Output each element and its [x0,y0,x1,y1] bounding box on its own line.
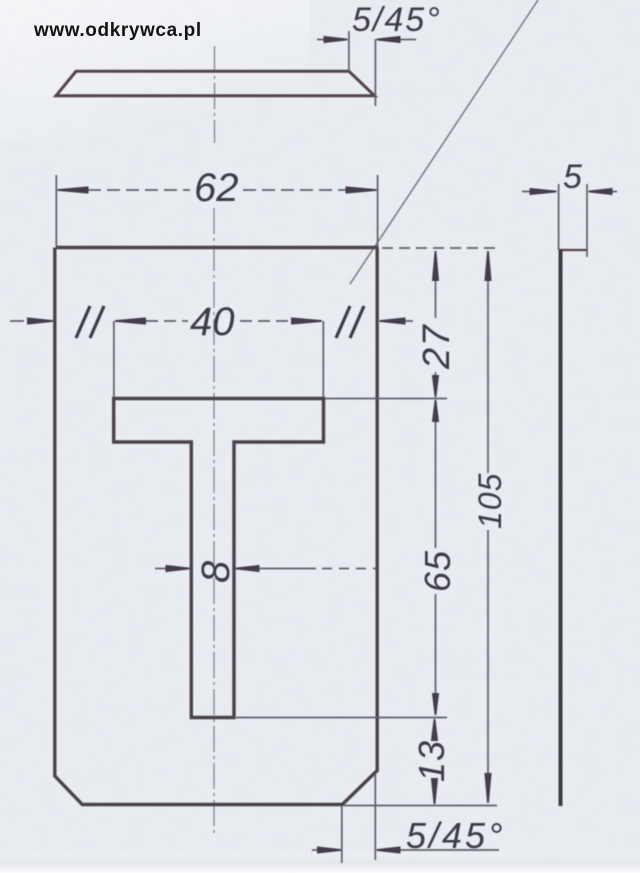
svg-text:13: 13 [411,740,452,782]
svg-text:62: 62 [194,166,239,210]
svg-text:5: 5 [563,158,582,196]
svg-text:5/45°: 5/45° [406,815,505,856]
svg-text:105: 105 [472,473,508,529]
svg-text:8: 8 [194,560,238,583]
svg-text:65: 65 [417,550,458,592]
svg-text:27: 27 [416,323,458,370]
svg-text:www.odkrywca.pl: www.odkrywca.pl [33,20,202,41]
svg-text:40: 40 [190,300,235,344]
svg-text:5/45°: 5/45° [352,1,442,39]
